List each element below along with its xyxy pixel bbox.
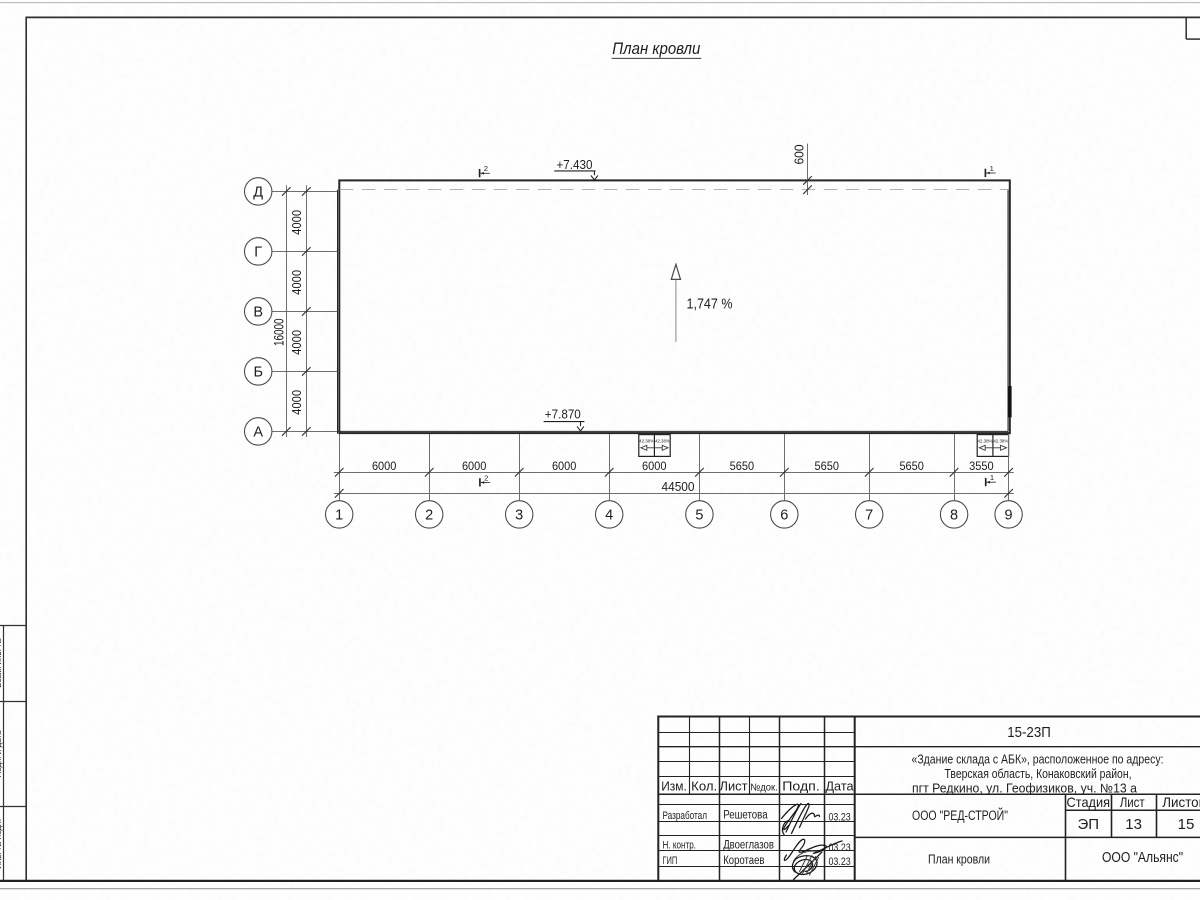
svg-text:ЭП: ЭП	[1078, 816, 1100, 833]
svg-text:2: 2	[425, 508, 433, 524]
svg-text:1: 1	[335, 508, 343, 524]
svg-text:6000: 6000	[552, 459, 577, 473]
svg-text:5: 5	[695, 508, 703, 524]
svg-text:15-23П: 15-23П	[1007, 725, 1051, 741]
svg-text:42.38%: 42.38%	[993, 439, 1008, 444]
svg-text:16000: 16000	[270, 318, 286, 346]
svg-text:План кровли: План кровли	[612, 40, 700, 58]
svg-text:2: 2	[484, 164, 488, 173]
svg-text:44500: 44500	[662, 480, 695, 494]
svg-text:4: 4	[605, 508, 613, 524]
svg-text:15: 15	[1178, 816, 1195, 833]
svg-text:Лист: Лист	[720, 779, 748, 794]
svg-text:1: 1	[990, 164, 994, 173]
svg-text:Изм.: Изм.	[661, 779, 687, 794]
svg-text:Дата: Дата	[826, 779, 855, 794]
svg-text:Тверская область, Конаковский: Тверская область, Конаковский район,	[945, 767, 1132, 781]
svg-text:4000: 4000	[289, 210, 304, 235]
svg-text:Взам. инв. №: Взам. инв. №	[0, 638, 3, 688]
svg-text:8: 8	[950, 508, 958, 524]
svg-text:+7.430: +7.430	[557, 157, 593, 172]
svg-text:А: А	[253, 425, 263, 441]
svg-text:Д: Д	[253, 185, 263, 201]
svg-text:Г: Г	[254, 245, 262, 261]
svg-text:«Здание склада с АБК», располо: «Здание склада с АБК», расположенное по …	[912, 753, 1164, 767]
svg-text:42.38%: 42.38%	[639, 439, 654, 444]
svg-text:3: 3	[515, 508, 523, 524]
svg-text:+7.870: +7.870	[545, 407, 581, 422]
svg-text:4000: 4000	[289, 270, 304, 295]
svg-text:600: 600	[793, 144, 807, 164]
svg-text:ГИП: ГИП	[663, 855, 678, 867]
svg-text:42.38%: 42.38%	[978, 439, 993, 444]
svg-text:03.23: 03.23	[829, 811, 851, 823]
svg-text:№док.: №док.	[750, 783, 778, 794]
svg-text:1,747 %: 1,747 %	[687, 297, 733, 313]
svg-text:2: 2	[484, 473, 488, 482]
svg-text:Подп.: Подп.	[782, 779, 820, 794]
svg-text:9: 9	[1005, 508, 1013, 524]
svg-text:Коротаев: Коротаев	[723, 855, 764, 867]
svg-text:7: 7	[865, 508, 873, 524]
svg-text:Кол.: Кол.	[691, 779, 717, 794]
svg-text:3550: 3550	[969, 459, 994, 473]
svg-text:03.23: 03.23	[829, 856, 851, 868]
svg-text:5650: 5650	[899, 459, 924, 473]
svg-text:Инв. № подл.: Инв. № подл.	[0, 819, 3, 869]
svg-text:5650: 5650	[815, 459, 840, 473]
svg-text:03.23: 03.23	[829, 842, 851, 854]
svg-text:1: 1	[990, 473, 994, 482]
svg-text:В: В	[253, 305, 263, 321]
svg-text:Б: Б	[253, 365, 263, 381]
svg-text:Разработал: Разработал	[663, 810, 708, 822]
svg-text:Листов: Листов	[1162, 794, 1200, 810]
svg-text:План кровли: План кровли	[928, 852, 990, 867]
svg-text:6000: 6000	[642, 459, 667, 473]
svg-text:Лист: Лист	[1120, 794, 1145, 810]
svg-text:Стадия: Стадия	[1067, 794, 1111, 810]
svg-text:6000: 6000	[462, 459, 487, 473]
svg-text:4000: 4000	[289, 390, 304, 415]
svg-text:Решетова: Решетова	[723, 810, 768, 822]
svg-text:6: 6	[780, 508, 788, 524]
svg-text:ООО "РЕД-СТРОЙ": ООО "РЕД-СТРОЙ"	[912, 808, 1008, 823]
svg-text:5650: 5650	[730, 459, 755, 473]
svg-text:13: 13	[1125, 816, 1142, 833]
svg-text:Подп. и дата: Подп. и дата	[0, 730, 3, 778]
svg-text:4000: 4000	[289, 330, 304, 355]
svg-text:6000: 6000	[372, 459, 397, 473]
svg-text:42.38%: 42.38%	[655, 439, 670, 444]
svg-text:Н. контр.: Н. контр.	[663, 840, 697, 852]
svg-text:Двоеглазов: Двоеглазов	[723, 840, 774, 852]
svg-text:ООО "Альянс": ООО "Альянс"	[1102, 849, 1183, 866]
